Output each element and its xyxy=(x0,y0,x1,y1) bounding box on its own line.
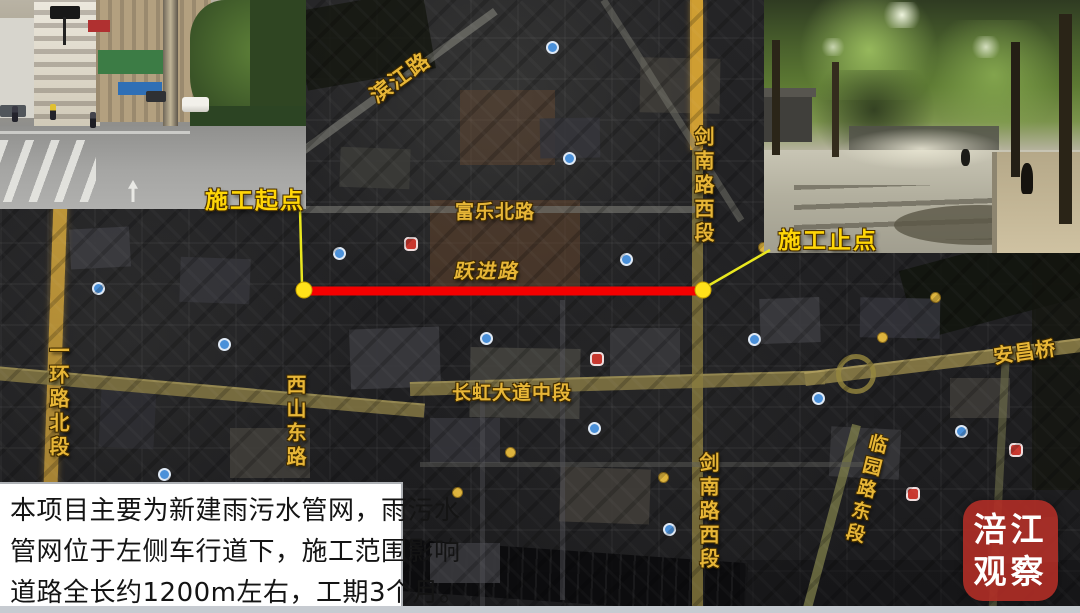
photo-start-point xyxy=(0,0,306,209)
sky-gap xyxy=(879,2,925,28)
tree-trunk xyxy=(832,62,839,157)
crosswalk xyxy=(0,140,96,202)
map-poi-icon xyxy=(955,425,968,438)
label-jiannan-west-top: 剑南路西段 xyxy=(689,126,718,246)
signal-pole xyxy=(63,17,66,45)
dark-car xyxy=(146,91,166,102)
fujiang-guancha-logo: 涪江 观察 xyxy=(963,500,1058,601)
tree-trunk xyxy=(163,0,178,132)
label-changhong-mid: 长虹大道中段 xyxy=(452,378,572,405)
map-poi-icon xyxy=(218,338,231,351)
map-poi-icon xyxy=(505,447,516,458)
map-poi-icon xyxy=(663,523,676,536)
map-poi-icon xyxy=(930,292,941,303)
sky-gap xyxy=(969,36,1003,58)
logo-text-top: 涪江 xyxy=(974,509,1048,551)
map-poi-icon xyxy=(658,472,669,483)
info-line-2: 管网位于左侧车行道下，施工范围影响 xyxy=(10,532,391,573)
shop-sign-green xyxy=(98,50,170,74)
road-minor-v1 xyxy=(560,300,565,600)
white-van xyxy=(182,97,209,112)
walking-figure xyxy=(1021,163,1033,194)
tree-trunk xyxy=(772,40,780,155)
label-yihuan-north: 一环路北段 xyxy=(44,340,73,460)
label-xishan-east: 西山东路 xyxy=(281,374,310,470)
bottom-strip xyxy=(0,606,1080,613)
building-block xyxy=(339,147,410,189)
map-river-edge xyxy=(1032,255,1080,490)
curb xyxy=(992,152,997,253)
map-poi-icon xyxy=(92,282,105,295)
map-poi-icon xyxy=(590,352,604,366)
map-poi-icon xyxy=(906,487,920,501)
shop-sign-red xyxy=(88,20,110,32)
building-block xyxy=(349,326,441,389)
building-block xyxy=(430,418,500,463)
slide-canvas: 滨江路 富乐北路 剑南路西段 跃进路 一环路北段 西山东路 长虹大道中段 安昌桥… xyxy=(0,0,1080,613)
stop-line xyxy=(0,131,190,134)
road-minor-h xyxy=(420,462,880,467)
pedestrian xyxy=(12,106,18,122)
map-poi-icon xyxy=(404,237,418,251)
photo-end-point xyxy=(764,0,1080,253)
map-poi-icon xyxy=(546,41,559,54)
building-block xyxy=(860,297,941,338)
road-minor-v2 xyxy=(480,380,485,613)
construction-end-label: 施工止点 xyxy=(778,221,878,255)
label-yuejin-road: 跃进路 xyxy=(452,255,523,284)
tree-trunk xyxy=(1059,14,1072,224)
map-poi-icon xyxy=(158,468,171,481)
building-block xyxy=(950,378,1010,418)
tree-trunk xyxy=(1011,42,1020,177)
map-poi-icon xyxy=(812,392,825,405)
roundabout xyxy=(836,354,876,394)
map-poi-icon xyxy=(748,333,761,346)
pedestrian xyxy=(50,104,56,120)
building-block xyxy=(69,226,131,269)
map-poi-icon xyxy=(620,253,633,266)
building-block xyxy=(559,466,651,524)
sun-haze xyxy=(839,128,1004,170)
building-block xyxy=(98,387,156,450)
map-poi-icon xyxy=(877,332,888,343)
label-jiannan-west-bottom: 剑南路西段 xyxy=(694,452,723,572)
label-fule-north-road: 富乐北路 xyxy=(455,197,535,224)
map-poi-icon xyxy=(480,332,493,345)
map-poi-icon xyxy=(588,422,601,435)
building-block xyxy=(540,117,601,158)
map-construction-patch2 xyxy=(460,90,555,165)
map-poi-icon xyxy=(333,247,346,260)
cyclist xyxy=(961,149,970,166)
map-poi-icon xyxy=(563,152,576,165)
building-block xyxy=(179,257,251,304)
map-poi-icon xyxy=(1009,443,1023,457)
building-block xyxy=(640,57,721,113)
info-line-1: 本项目主要为新建雨污水管网，雨污水 xyxy=(10,491,391,532)
building-block xyxy=(610,328,680,378)
pedestrian xyxy=(90,112,96,128)
sky-gap xyxy=(819,38,847,56)
road-minor-diag xyxy=(601,0,745,222)
logo-text-bottom: 观察 xyxy=(974,551,1048,593)
project-info-box: 本项目主要为新建雨污水管网，雨污水 管网位于左侧车行道下，施工范围影响 道路全长… xyxy=(0,482,403,613)
building-block xyxy=(759,297,821,344)
construction-start-label: 施工起点 xyxy=(205,181,305,215)
